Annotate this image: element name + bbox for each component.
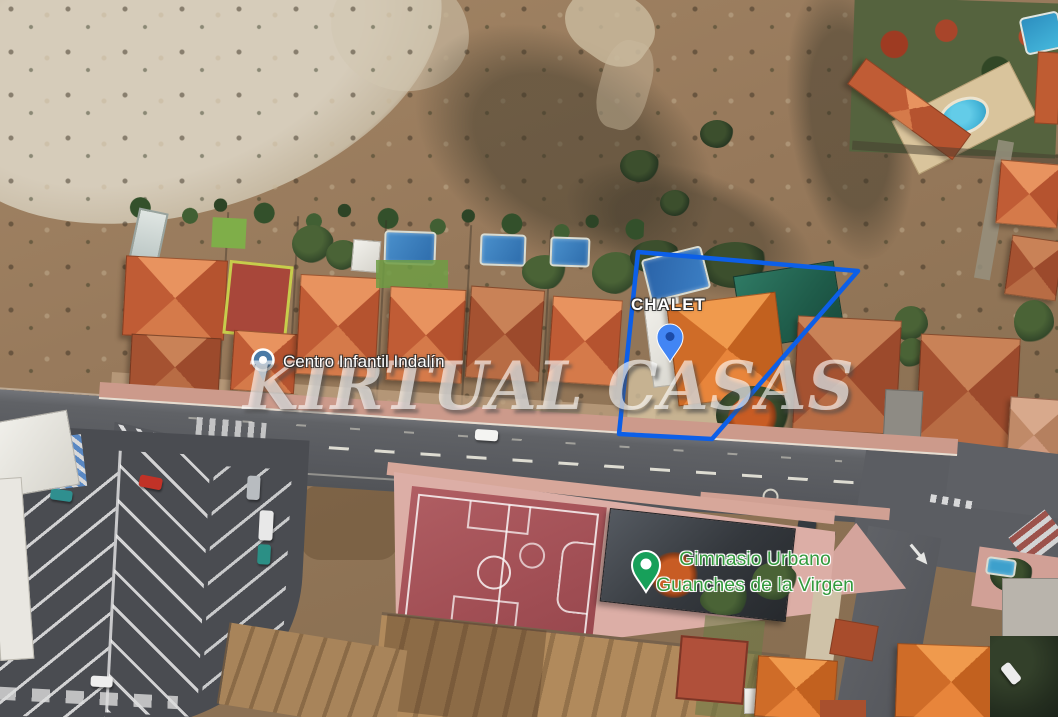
poi-label-gym-line1: Gimnasio Urbano (638, 546, 872, 572)
white-van (258, 510, 274, 541)
red-roof (829, 618, 879, 661)
gray-building (1002, 578, 1058, 638)
swimming-pool (479, 233, 526, 267)
swimming-pool (549, 236, 590, 267)
courtyard (222, 260, 293, 340)
garden-trees (1014, 300, 1054, 344)
corner-pool (1018, 10, 1058, 55)
poi-label-school[interactable]: Centro Infantil Indalín (283, 352, 445, 372)
red-roof (820, 700, 866, 717)
white-car (90, 676, 113, 688)
house-roof (915, 333, 1021, 448)
shrub (620, 150, 660, 182)
farm-building (675, 635, 748, 705)
poi-label-gym[interactable]: Gimnasio Urbano Guanches de la Virgen (638, 546, 872, 598)
lawn (376, 260, 448, 288)
shrub (660, 190, 690, 216)
white-car (475, 429, 499, 442)
shrub (700, 120, 734, 148)
poi-label-gym-line2: Guanches de la Virgen (638, 572, 872, 598)
house-roof (122, 255, 228, 340)
dirt-patch (302, 485, 397, 560)
house-roof (1004, 235, 1058, 302)
satellite-map[interactable]: KIRTUAL CASAS CHALET Centro Infantil Ind… (0, 0, 1058, 717)
house-roof (995, 159, 1058, 228)
dark-trees (990, 636, 1058, 717)
teal-truck (257, 544, 271, 565)
gray-car (246, 475, 260, 500)
roof-edge (1034, 51, 1058, 124)
parcel-label: CHALET (631, 295, 706, 315)
parking-stripes (107, 451, 211, 717)
lawn (211, 217, 247, 249)
